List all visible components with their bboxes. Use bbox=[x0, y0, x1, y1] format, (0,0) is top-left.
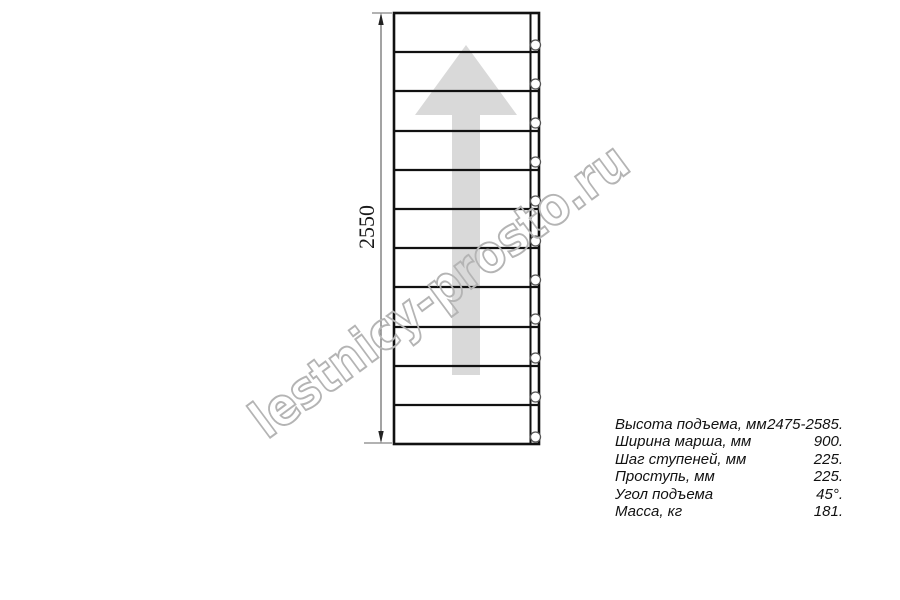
spec-value: 45°. bbox=[816, 486, 843, 503]
spec-label: Высота подъема, мм bbox=[615, 416, 767, 433]
spec-value: 225. bbox=[814, 468, 843, 485]
spec-row-tread: Проступь, мм 225. bbox=[615, 468, 843, 485]
spec-value: 2475-2585. bbox=[767, 416, 843, 433]
site-watermark: lestnicy-prosto.ru bbox=[239, 132, 640, 451]
spec-label: Проступь, мм bbox=[615, 468, 715, 485]
spec-label: Угол подъема bbox=[615, 486, 713, 503]
spec-label: Масса, кг bbox=[615, 503, 682, 520]
drawing-canvas: 2550 lestnicy-prosto.ru Высота подъема, … bbox=[0, 0, 900, 600]
spec-value: 181. bbox=[814, 503, 843, 520]
spec-label: Ширина марша, мм bbox=[615, 433, 751, 450]
spec-row-angle: Угол подъема 45°. bbox=[615, 486, 843, 503]
spec-value: 900. bbox=[814, 433, 843, 450]
spec-value: 225. bbox=[814, 451, 843, 468]
spec-table: Высота подъема, мм 2475-2585. Ширина мар… bbox=[615, 416, 843, 520]
dimension-value: 2550 bbox=[354, 205, 379, 249]
dimension-arrowhead-down-icon bbox=[378, 431, 383, 443]
spec-row-step: Шаг ступеней, мм 225. bbox=[615, 451, 843, 468]
dimension-arrowhead-up-icon bbox=[378, 13, 383, 25]
spec-label: Шаг ступеней, мм bbox=[615, 451, 746, 468]
spec-row-mass: Масса, кг 181. bbox=[615, 503, 843, 520]
spec-row-height: Высота подъема, мм 2475-2585. bbox=[615, 416, 843, 433]
spec-row-width: Ширина марша, мм 900. bbox=[615, 433, 843, 450]
